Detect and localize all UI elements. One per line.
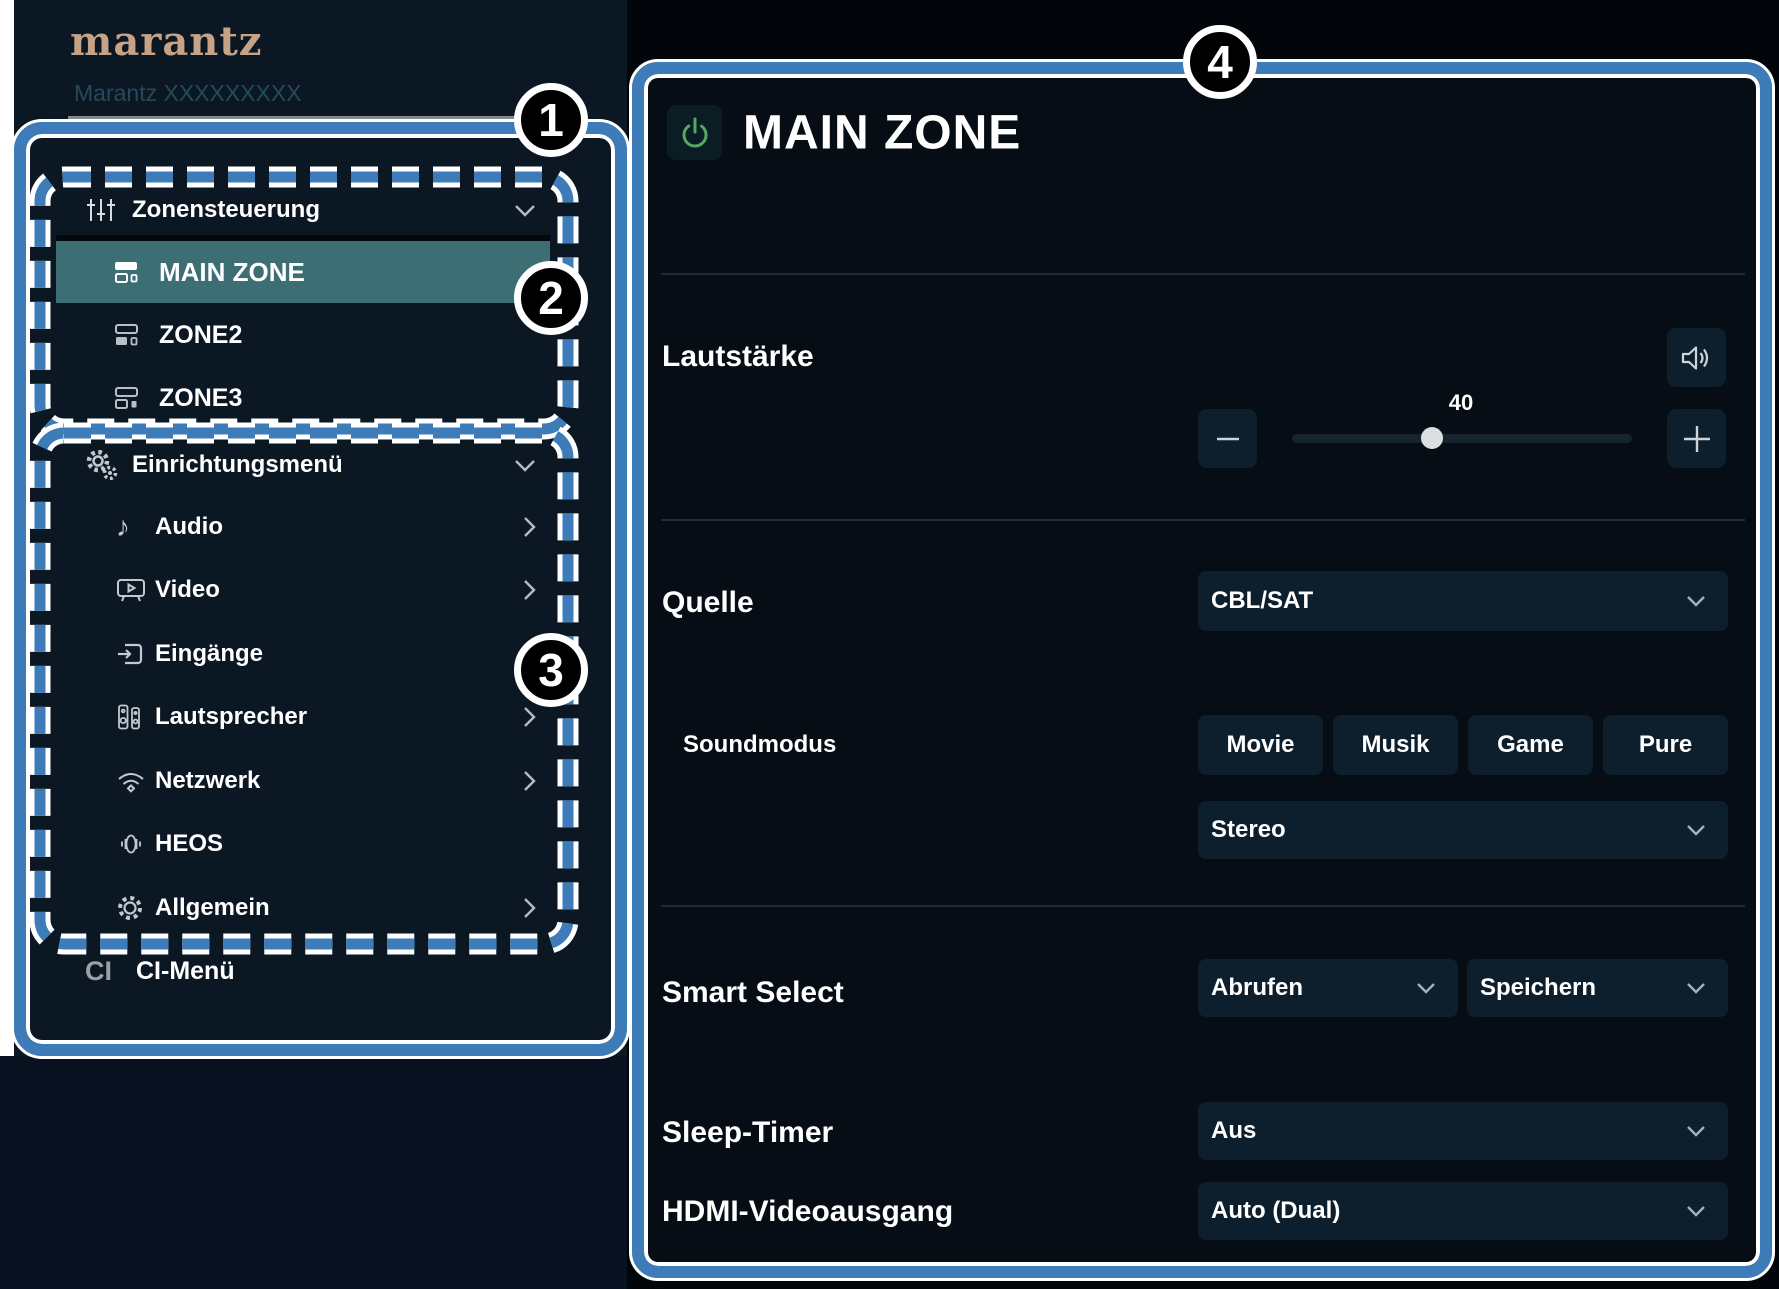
divider [661,273,1745,275]
zone2-icon [114,323,140,347]
chevron-right-icon [523,897,536,919]
sidebar-item-label: Audio [155,513,223,541]
hdmi-out-value: Auto (Dual) [1211,1197,1340,1225]
chevron-down-icon [1686,824,1706,836]
music-note-icon: ♪ [116,513,130,541]
marantz-web-setup-screen: marantz Marantz XXXXXXXXX Zonensteuerung [0,0,1779,1289]
wifi-icon [116,769,146,793]
smart-select-label: Smart Select [662,976,844,1010]
volume-down-button[interactable] [1198,409,1257,468]
sidebar-item-label: ZONE2 [159,321,242,350]
soundmode-game-button[interactable]: Game [1468,715,1593,775]
heos-icon [116,831,146,857]
soundmode-select[interactable]: Stereo [1198,801,1728,859]
volume-slider[interactable] [1292,434,1632,443]
chevron-down-icon [514,459,536,472]
chevron-down-icon [1686,595,1706,607]
chevron-down-icon [1686,982,1706,994]
soundmode-movie-button[interactable]: Movie [1198,715,1323,775]
divider [661,519,1745,521]
divider [661,905,1745,907]
sidebar-item-zone2[interactable]: ZONE2 [56,304,550,366]
minus-icon [1214,425,1242,453]
zone-title: MAIN ZONE [743,106,1021,161]
model-underline [68,116,515,119]
chevron-down-icon [1416,982,1436,994]
setup-section-header[interactable]: Einrichtungsmenü [56,441,550,489]
sleep-timer-label: Sleep-Timer [662,1116,833,1150]
sidebar-item-label: Video [155,576,220,604]
smart-recall-value: Abrufen [1211,974,1303,1002]
chevron-right-icon [523,706,536,728]
plus-icon [1681,423,1713,455]
sidebar-item-heos[interactable]: HEOS [56,813,550,875]
zone3-icon [114,386,140,410]
sidebar-item-audio[interactable]: ♪ Audio [56,496,550,558]
volume-up-button[interactable] [1667,409,1726,468]
page-edge-strip [0,0,14,1056]
sidebar-item-video[interactable]: Video [56,559,550,621]
sleep-timer-select[interactable]: Aus [1198,1102,1728,1160]
sidebar-item-ci-menu[interactable]: CI CI-Menü [0,949,560,993]
chevron-right-icon [523,770,536,792]
soundmode-pure-button[interactable]: Pure [1603,715,1728,775]
sidebar-item-general[interactable]: Allgemein [56,877,550,939]
ci-menu-label: CI-Menü [136,957,235,986]
mute-button[interactable] [1667,328,1726,387]
input-arrow-icon [116,642,144,666]
sidebar-item-network[interactable]: Netzwerk [56,750,550,812]
section-separator [56,235,550,241]
soundmode-buttons: Movie Musik Game Pure [1198,715,1728,775]
zones-section-title: Zonensteuerung [132,196,320,224]
sidebar-item-label: Netzwerk [155,767,260,795]
callout-1: 1 [514,83,588,157]
soundmode-value: Stereo [1211,816,1286,844]
speaker-icon [1679,343,1715,373]
callout-4: 4 [1183,25,1257,99]
sidebar-item-label: Eingänge [155,640,263,668]
smart-store-value: Speichern [1480,974,1596,1002]
setup-section-title: Einrichtungsmenü [132,451,343,479]
video-monitor-icon [116,578,146,602]
sidebar-lower-area [0,1056,627,1289]
main-zone-panel: MAIN ZONE Lautstärke 40 [632,62,1772,1278]
source-label: Quelle [662,586,754,620]
ci-badge: CI [85,956,112,987]
gears-icon [86,450,118,480]
smart-select-recall[interactable]: Abrufen [1198,959,1458,1017]
hdmi-out-select[interactable]: Auto (Dual) [1198,1182,1728,1240]
power-icon [678,116,712,150]
soundmode-music-button[interactable]: Musik [1333,715,1458,775]
sidebar-item-label: Allgemein [155,894,270,922]
chevron-down-icon [514,204,536,217]
device-model-text: Marantz XXXXXXXXX [74,80,302,107]
sidebar-item-speakers[interactable]: Lautsprecher [56,686,550,748]
soundmode-label: Soundmodus [683,731,836,759]
sidebar-item-zone3[interactable]: ZONE3 [56,367,550,429]
sleep-timer-value: Aus [1211,1117,1256,1145]
chevron-right-icon [523,579,536,601]
volume-label: Lautstärke [662,340,814,374]
hdmi-out-label: HDMI-Videoausgang [662,1195,953,1229]
power-button[interactable] [667,105,722,160]
chevron-right-icon [523,516,536,538]
faders-icon [86,197,116,223]
sidebar-item-label: MAIN ZONE [159,257,305,288]
sidebar-item-label: HEOS [155,830,223,858]
source-select[interactable]: CBL/SAT [1198,571,1728,631]
sidebar-item-label: Lautsprecher [155,703,307,731]
sidebar-item-inputs[interactable]: Eingänge [56,623,550,685]
source-value: CBL/SAT [1211,587,1313,615]
volume-value: 40 [1431,390,1491,416]
gear-icon [116,894,144,922]
volume-slider-thumb[interactable] [1421,427,1443,449]
callout-3: 3 [514,633,588,707]
callout-2: 2 [514,261,588,335]
chevron-down-icon [1686,1205,1706,1217]
speakers-icon [116,704,142,730]
smart-select-store[interactable]: Speichern [1467,959,1728,1017]
sidebar-item-label: ZONE3 [159,384,242,413]
sidebar-item-main-zone[interactable]: MAIN ZONE [56,241,550,303]
marantz-logo: marantz [70,18,263,65]
zones-section-header[interactable]: Zonensteuerung [56,186,550,234]
chevron-down-icon [1686,1125,1706,1137]
main-zone-icon [114,260,140,284]
